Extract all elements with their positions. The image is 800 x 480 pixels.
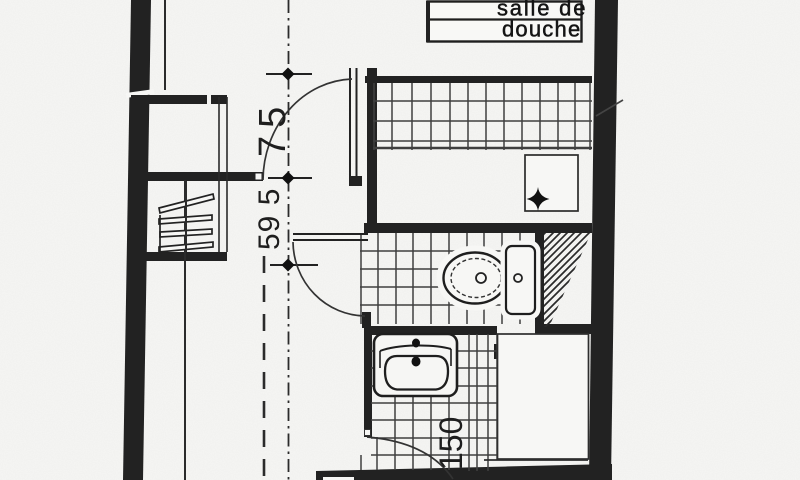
- svg-text:douche: douche: [502, 17, 581, 42]
- svg-text:59 5: 59 5: [253, 188, 286, 250]
- svg-text:75: 75: [252, 99, 294, 157]
- svg-text:150: 150: [433, 417, 469, 470]
